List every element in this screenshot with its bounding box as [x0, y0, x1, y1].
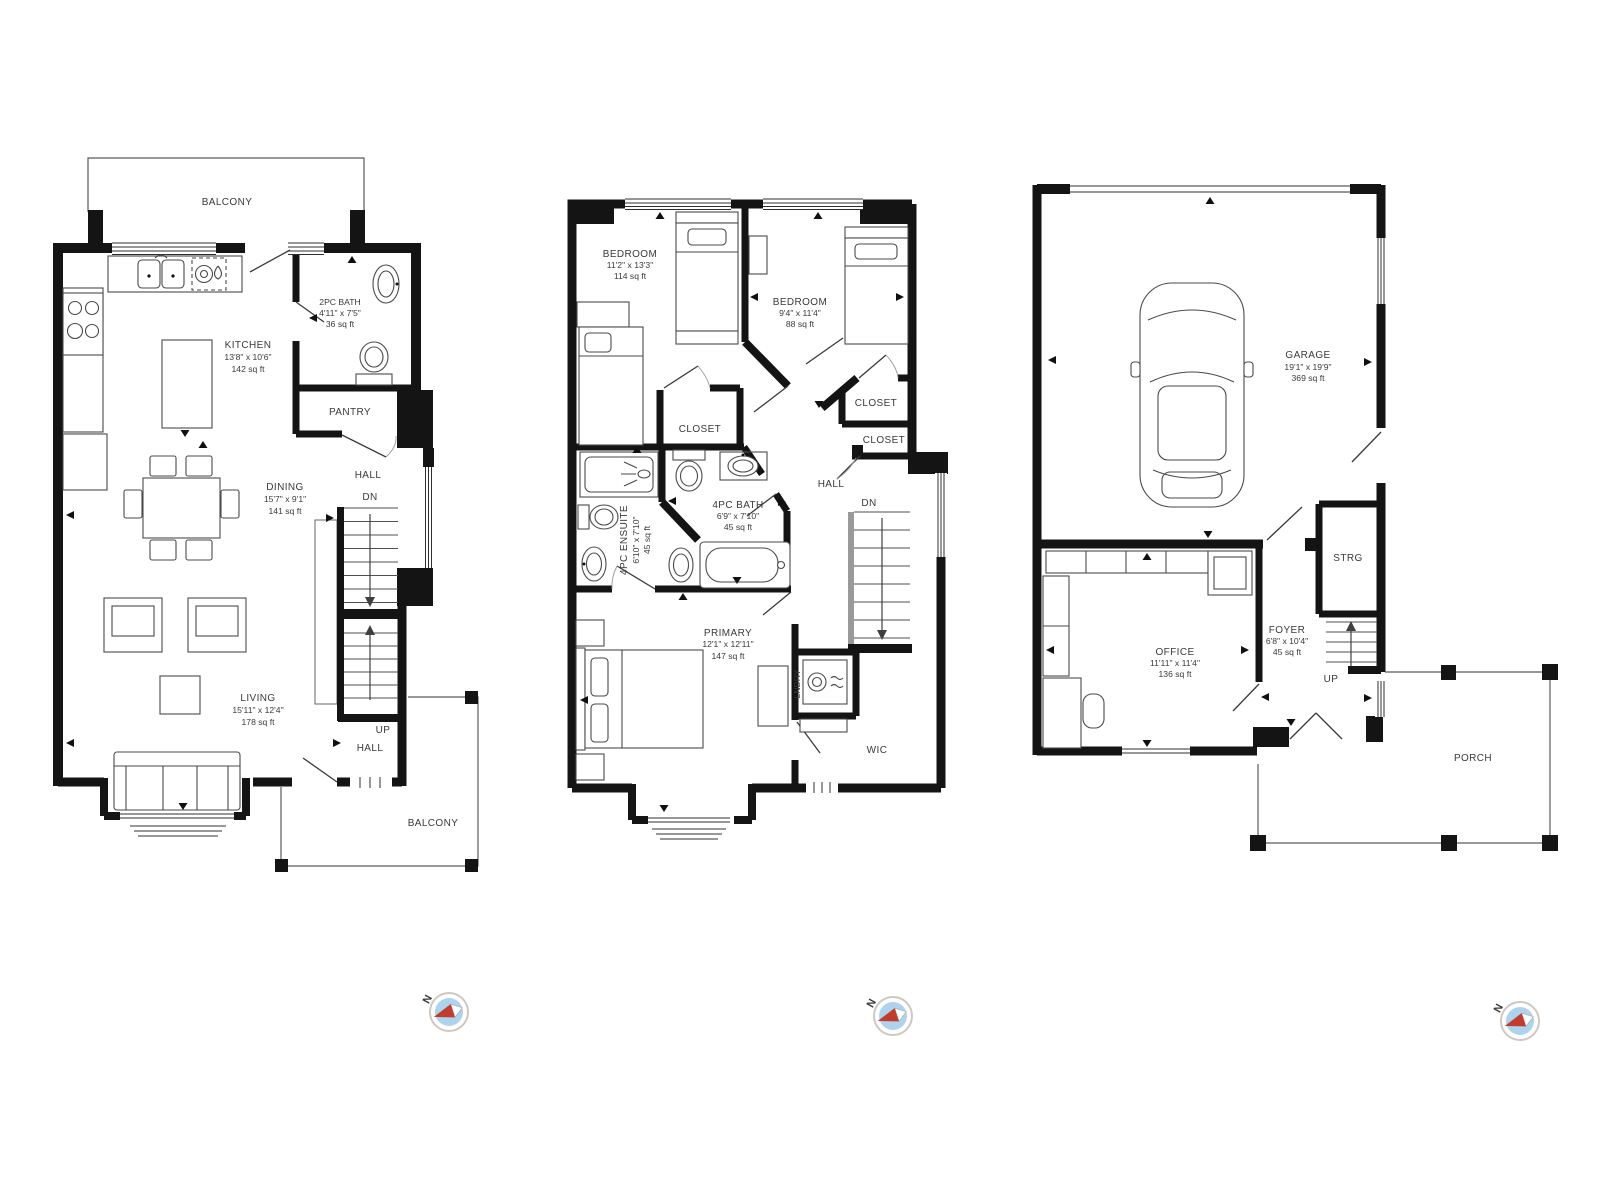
room-area-garage: 369 sq ft: [1292, 373, 1326, 383]
room-label-wic: WIC: [867, 745, 888, 756]
room-area-bedroom-left: 114 sq ft: [614, 271, 647, 281]
kitchen-counter: [63, 255, 242, 490]
room-label-foyer: FOYER: [1269, 625, 1305, 636]
floorplan-page: BALCONY 2PC BATH 4'11" x 7'5" 36 sq ft K…: [0, 0, 1600, 1200]
interior-wall: [662, 502, 698, 540]
room-dims-bedroom-left: 11'2" x 13'3": [607, 260, 654, 270]
room-label-garage: GARAGE: [1285, 350, 1330, 361]
stairs-label-dn: DN: [362, 492, 377, 503]
room-dims-ensuite: 6'10" x 7'10": [631, 516, 641, 563]
nightstand: [576, 754, 604, 780]
ensuite-fixtures: [578, 452, 658, 581]
room-dims-dining: 15'7" x 9'1": [264, 494, 306, 504]
room-label-kitchen: KITCHEN: [225, 340, 272, 351]
bedroom-right-furniture: [749, 227, 908, 344]
room-label-living: LIVING: [240, 693, 275, 704]
office-chair: [1083, 694, 1104, 728]
room-area-ensuite: 45 sq ft: [642, 525, 652, 554]
room-label-bedroom-right: BEDROOM: [773, 297, 827, 308]
room-dims-bath4: 6'9" x 7'10": [717, 511, 759, 521]
washer-dryer: [803, 660, 847, 704]
interior-wall: [795, 624, 856, 788]
office-furniture: [1043, 551, 1252, 748]
garage-door: [1070, 186, 1350, 192]
stairs-label-up: UP: [376, 725, 391, 736]
kitchen-island: [162, 340, 212, 428]
stairs-main-level: [315, 507, 400, 722]
porch-outline: [1250, 664, 1558, 851]
room-label-bath4: 4PC BATH: [712, 500, 763, 511]
room-dims-office: 11'11" x 11'4": [1150, 658, 1200, 668]
room-label-office: OFFICE: [1155, 647, 1194, 658]
room-dims-bath: 4'11" x 7'5": [319, 308, 361, 318]
room-label-balcony-top: BALCONY: [202, 197, 253, 208]
room-dims-primary: 12'1" x 12'11": [702, 639, 753, 649]
cabinet-row: [1046, 551, 1208, 573]
room-dims-bedroom-right: 9'4" x 11'4": [779, 308, 821, 318]
bathtub: [700, 542, 790, 588]
room-dims-kitchen: 13'8" x 10'6": [224, 352, 271, 362]
side-mirror: [1244, 362, 1253, 377]
window: [112, 242, 434, 836]
floor-plan-level-main: BALCONY 2PC BATH 4'11" x 7'5" 36 sq ft K…: [58, 158, 478, 872]
room-label-hall-upper: HALL: [355, 470, 382, 481]
room-label-hall: HALL: [818, 479, 845, 490]
stairs-label-dn: DN: [861, 498, 876, 509]
stove: [63, 293, 103, 355]
room-label-bedroom-left: BEDROOM: [603, 249, 657, 260]
shelf: [749, 236, 767, 274]
window: [1122, 238, 1387, 757]
compass-icon: N: [865, 997, 912, 1035]
room-label-storage: STRG: [1333, 553, 1362, 564]
floor-plan-level-entry: GARAGE 19'1" x 19'9" 369 sq ft STRG FOYE…: [1037, 185, 1558, 851]
desk: [1043, 678, 1081, 748]
room-label-laundry: LNDRY: [792, 669, 802, 698]
dresser: [758, 666, 788, 726]
room-label-closet-upper: CLOSET: [855, 398, 897, 409]
room-area-dining: 141 sq ft: [269, 506, 303, 516]
fridge: [63, 434, 107, 490]
room-area-office: 136 sq ft: [1159, 669, 1193, 679]
floor-plan-canvas: BALCONY 2PC BATH 4'11" x 7'5" 36 sq ft K…: [0, 0, 1600, 1200]
bathroom-sink: [582, 547, 606, 581]
room-label-hall-lower: HALL: [357, 743, 384, 754]
stairs-upper-level: [848, 512, 910, 644]
toilet: [356, 374, 392, 385]
compass-icon: N: [421, 993, 468, 1031]
kitchen-sink: [138, 260, 160, 288]
toilet: [673, 450, 705, 460]
room-label-closet-bedroom: CLOSET: [679, 424, 721, 435]
wic-bench: [800, 719, 847, 732]
room-area-bath: 36 sq ft: [326, 319, 355, 329]
dresser: [577, 302, 629, 327]
room-label-ensuite: 4PC ENSUITE: [619, 505, 630, 575]
room-label-balcony-bottom: BALCONY: [408, 818, 459, 829]
living-furniture: [104, 598, 246, 810]
room-area-bedroom-right: 88 sq ft: [786, 319, 815, 329]
room-area-bath4: 45 sq ft: [724, 522, 753, 532]
bed: [845, 227, 908, 238]
corner-cabinet: [1208, 551, 1252, 595]
room-dims-foyer: 6'8" x 10'4": [1266, 636, 1308, 646]
room-label-bath: 2PC BATH: [319, 297, 360, 307]
room-area-foyer: 45 sq ft: [1273, 647, 1302, 657]
dining-table: [124, 456, 239, 560]
kitchen-sink: [162, 260, 184, 288]
door: [1233, 432, 1381, 739]
car-top-view: [1131, 283, 1253, 507]
room-label-pantry: PANTRY: [329, 407, 371, 418]
room-area-living: 178 sq ft: [242, 717, 276, 727]
coffee-table: [160, 676, 200, 714]
nightstand: [576, 620, 604, 646]
room-label-primary: PRIMARY: [704, 628, 752, 639]
stairs-entry-level: [1326, 621, 1377, 666]
floor-plan-level-upper: BEDROOM 11'2" x 13'3" 114 sq ft BEDROOM …: [568, 198, 948, 839]
bathroom-sink: [669, 548, 693, 582]
room-label-closet-lower: CLOSET: [863, 435, 905, 446]
room-dims-garage: 19'1" x 19'9": [1284, 362, 1331, 372]
room-label-dining: DINING: [266, 482, 303, 493]
sofa: [114, 752, 240, 810]
side-mirror: [1131, 362, 1140, 377]
room-label-porch: PORCH: [1454, 753, 1492, 764]
room-area-primary: 147 sq ft: [712, 651, 746, 661]
toilet: [578, 505, 589, 529]
room-area-kitchen: 142 sq ft: [232, 364, 266, 374]
stairs-label-up: UP: [1324, 674, 1339, 685]
compass-icon: N: [1492, 1002, 1539, 1040]
room-dims-living: 15'11" x 12'4": [232, 705, 283, 715]
powder-room-fixtures: [356, 265, 399, 385]
primary-furniture: [576, 620, 788, 780]
bed: [676, 212, 738, 223]
